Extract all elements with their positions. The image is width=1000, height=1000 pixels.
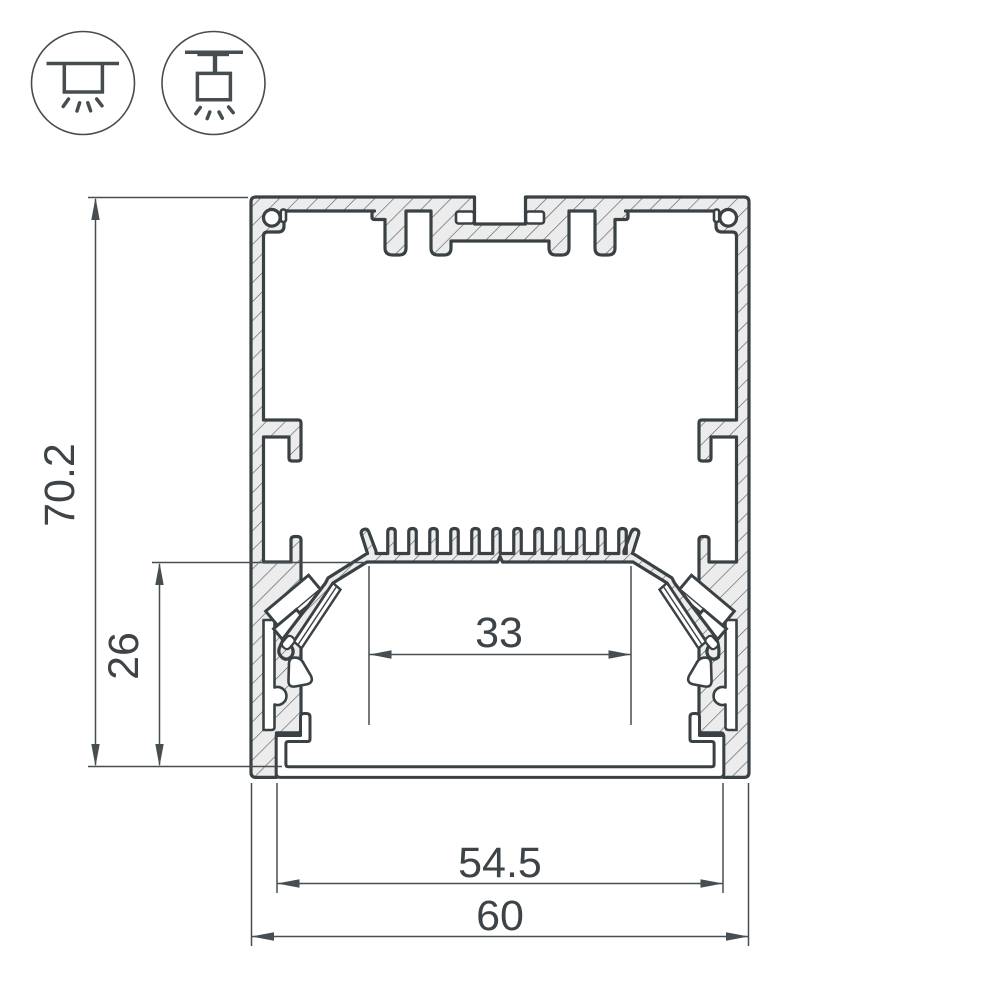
svg-text:54.5: 54.5: [458, 839, 542, 887]
svg-text:70.2: 70.2: [36, 443, 84, 527]
svg-text:33: 33: [475, 609, 523, 657]
svg-text:26: 26: [100, 632, 148, 680]
svg-text:60: 60: [476, 892, 524, 940]
